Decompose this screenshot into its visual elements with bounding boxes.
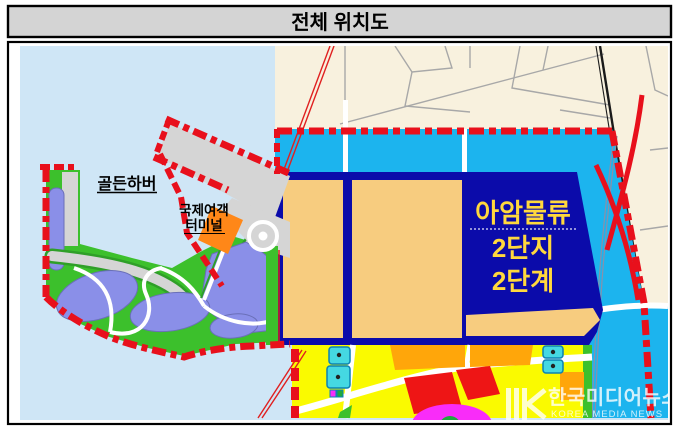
roundabout-center [259,232,268,241]
mini-block [337,390,343,397]
logistics-label-line2: 2단지 [492,233,554,263]
white-gap-road [343,100,348,176]
facility-dot [551,350,555,354]
watermark-logo-icon [506,388,527,420]
mini-block [330,390,336,397]
logistics-label-line1: 아암물류 [475,198,571,228]
facility-dot [337,353,341,357]
facility-dot [551,364,555,368]
facility-dot [336,375,340,379]
logistics-complex: 아암물류 2단지 2단계 [275,172,603,345]
terminal-label-line1: 국제여객 [179,202,229,218]
logo-bar [506,388,511,420]
logistics-label-line3: 2단계 [492,266,554,296]
parcel [352,180,462,338]
map-content: 아암물류 2단지 2단계 [20,46,680,432]
orange-block [390,345,465,370]
parcel [283,180,343,338]
terminal-label-line2: 터미널 [185,218,222,233]
logo-bar [514,388,519,420]
white-gap-road [462,129,467,176]
orange-block [470,345,533,367]
page-title: 전체 위치도 [291,11,389,34]
watermark-subtitle: KOREA MEDIA NEWS [551,409,663,420]
golden-harbor-label: 골든하버 [98,175,157,193]
green-band [266,246,278,345]
sea-patch [275,345,292,418]
watermark-title: 한국미디어뉴스 [548,386,680,409]
header: 전체 위치도 [8,6,671,37]
location-map-figure: 전체 위치도 [0,0,680,432]
